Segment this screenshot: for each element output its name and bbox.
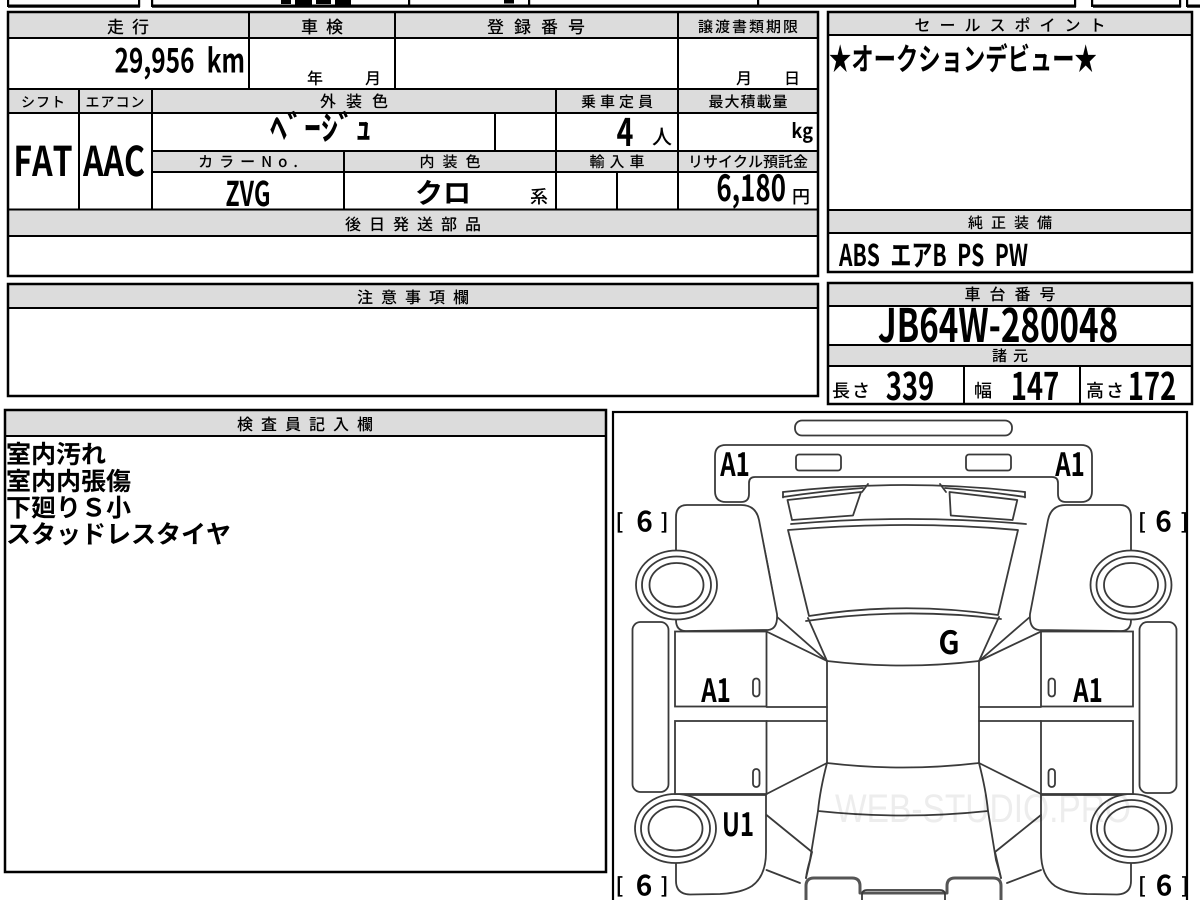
svg-text:WEB-STUDIO.PRO: WEB-STUDIO.PRO bbox=[835, 787, 1131, 831]
